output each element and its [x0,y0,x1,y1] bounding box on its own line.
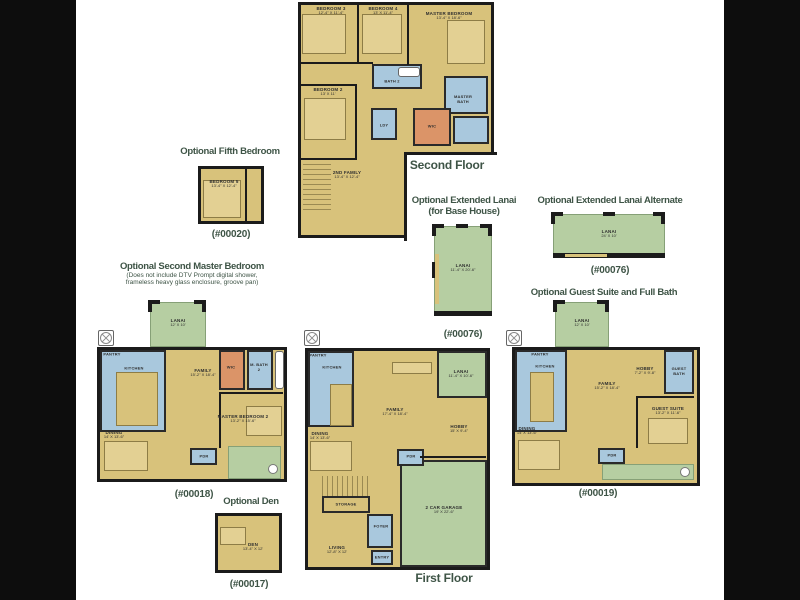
room-label-kitchen: KITCHEN [124,367,143,372]
wall-segment [638,396,694,398]
kitchen-island-icon [530,372,554,422]
bed-icon [304,98,346,140]
compass-icon [506,330,522,346]
wall-segment [301,84,357,86]
wall-segment [636,396,638,448]
extended-lanai-alt-code: (#00076) [591,265,629,276]
second-master-code: (#00018) [175,489,213,500]
corner-bracket [480,224,492,236]
room-label-dining: DINING 14' X 13'-6" [104,430,124,440]
second-master-note-line2: frameless heavy glass enclosure, groove … [126,279,259,286]
dining-table-icon [518,440,560,470]
floorplan-sheet: BEDROOM 3 12'-4" X 11'-4" BEDROOM 4 13' … [0,0,800,600]
room-label-master-bedroom-2: MASTER BEDROOM 2 13'-2" X 15'-6" [218,414,269,424]
room-label-pantry: PANTRY [531,353,548,358]
room-label-kitchen: KITCHEN [322,366,341,371]
wall-segment [603,212,615,216]
rear-lanai-patch [228,446,281,479]
room-label-foyer: FOYER [374,525,389,530]
room-label-wic: WIC [428,125,436,130]
room-label-bedroom-4: BEDROOM 4 13' X 11'-4" [368,6,397,16]
dining-table-icon [310,441,352,471]
corner-bracket [551,212,563,224]
room-label-master-bath: MASTER BATH [450,95,476,105]
room-label-master-bath2: M. BATH 2 [249,363,269,373]
room-label-laundry: LDY [380,124,389,129]
room-label-living: LIVING 12'-8" X 12' [327,545,347,555]
room-label-pantry: PANTRY [309,354,326,359]
compass-rose [306,332,318,344]
room-label-lanai: LANAI 11'-4" X 10'-6" [449,369,474,379]
stairs-icon [303,164,331,212]
wall-segment [435,254,439,304]
shower-icon [275,351,284,389]
room-label-guest-bath: GUEST BATH [667,367,691,377]
room-label-dining: DINING 14' X 13'-6" [517,426,537,436]
wall-segment [434,311,492,316]
extended-lanai-heading-line2: (for Base House) [428,206,499,217]
wall-segment [420,456,486,458]
wall-segment [355,86,357,160]
room-label-master-bedroom: MASTER BEDROOM 13'-4" X 18'-6" [426,11,473,21]
guest-suite-code: (#00019) [579,488,617,499]
room-label-guest-suite: GUEST SUITE 13'-2" X 11'-6" [652,406,684,416]
bed-icon [447,20,485,64]
wall-segment [456,224,468,228]
room-label-garage: 2 CAR GARAGE 19' X 22'-6" [426,505,463,515]
fifth-bedroom-heading: Optional Fifth Bedroom [180,146,279,157]
foyer-area [367,514,393,548]
room-label-lanai-alt: LANAI 24' X 10' [601,229,616,239]
room-label-2nd-family: 2ND FAMILY 13'-4" X 12'-4" [333,170,361,180]
master-wc-room [453,116,489,144]
corner-bracket [194,300,206,312]
room-label-lanai: LANAI 12' X 10' [170,318,185,328]
room-label-family: FAMILY 15'-2" X 18'-4" [594,381,619,391]
compass-icon [98,330,114,346]
room-label-hobby: HOBBY 7'-2" X 9'-8" [635,366,656,376]
sofa-icon [392,362,432,374]
room-label-bedroom-2: BEDROOM 2 13' X 11' [313,87,342,97]
extended-lanai-alt-heading: Optional Extended Lanai Alternate [538,195,683,206]
bathtub-icon [398,67,420,77]
room-label-den: DEN 13'-4" X 12' [243,542,263,552]
spa-icon [680,467,690,477]
compass-rose [100,332,112,344]
room-label-pantry: PANTRY [103,353,120,358]
second-master-note-line1: (Does not include DTV Prompt digital sho… [126,272,257,279]
first-floor-title: First Floor [415,571,472,585]
corner-bracket [653,212,665,224]
stairs-icon [322,476,368,496]
kitchen-island-icon [330,384,352,426]
corner-bracket [432,224,444,236]
wall-segment [357,5,359,63]
corner-bracket [597,300,609,312]
wall-segment [221,392,283,394]
bed-icon [362,14,402,54]
room-label-lanai: LANAI 12' X 10' [574,318,589,328]
room-label-powder: PDR [199,455,208,460]
den-code: (#00017) [230,579,268,590]
room-label-entry: ENTRY [375,556,389,561]
wall-segment [245,169,247,221]
kitchen-island-icon [116,372,158,426]
extended-lanai-heading-line1: Optional Extended Lanai [412,195,516,206]
room-label-bedroom-3: BEDROOM 3 12'-4" X 11'-4" [316,6,345,16]
dining-table-icon [104,441,148,471]
room-label-bedroom-5: BEDROOM 5 13'-4" X 12'-4" [209,179,238,189]
wall-segment [301,62,373,64]
room-label-dining: DINING 14' X 13'-6" [310,431,330,441]
room-label-family: FAMILY 17'-4" X 18'-4" [382,407,407,417]
compass-icon [304,330,320,346]
room-label-hobby: HOBBY 15' X 9'-4" [450,424,468,434]
room-label-lanai: LANAI 11'-4" X 20'-6" [451,263,476,273]
room-label-storage: STORAGE [335,503,356,508]
room-label-powder: PDR [607,454,616,459]
bed-icon [302,14,346,54]
corner-bracket [553,300,565,312]
wall-segment [407,5,409,65]
wall-segment [565,254,607,257]
extended-lanai-code: (#00076) [444,329,482,340]
guest-suite-heading: Optional Guest Suite and Full Bath [531,287,678,298]
room-label-bath-2: BATH 2 [384,80,399,85]
room-label-kitchen: KITCHEN [535,365,554,370]
room-label-wic: WIC [227,366,235,371]
corner-bracket [148,300,160,312]
compass-rose [508,332,520,344]
spa-icon [268,464,278,474]
room-label-family: FAMILY 15'-2" X 18'-4" [190,368,215,378]
fifth-bedroom-code: (#00020) [212,229,250,240]
second-floor-title: Second Floor [410,158,484,172]
second-master-heading: Optional Second Master Bedroom [120,261,264,272]
wall-segment [301,158,357,160]
bed-icon [648,418,688,444]
den-heading: Optional Den [223,496,279,507]
room-label-powder: PDR [406,455,415,460]
